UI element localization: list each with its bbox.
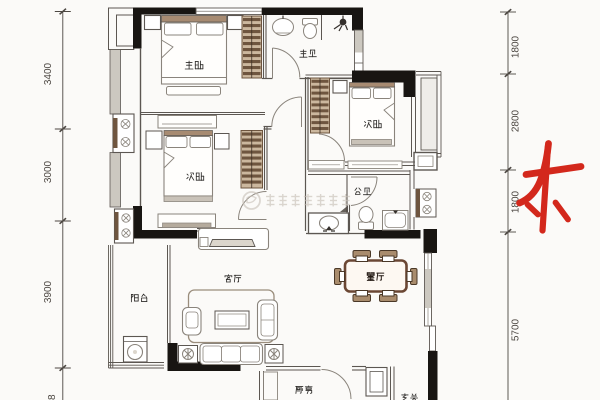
- svg-text:3400: 3400: [43, 62, 54, 85]
- svg-text:1800: 1800: [511, 35, 522, 58]
- svg-text:3900: 3900: [43, 280, 54, 303]
- svg-text:8: 8: [47, 394, 58, 400]
- svg-text:5700: 5700: [511, 318, 522, 341]
- svg-text:2800: 2800: [511, 109, 522, 132]
- svg-text:3000: 3000: [43, 160, 54, 183]
